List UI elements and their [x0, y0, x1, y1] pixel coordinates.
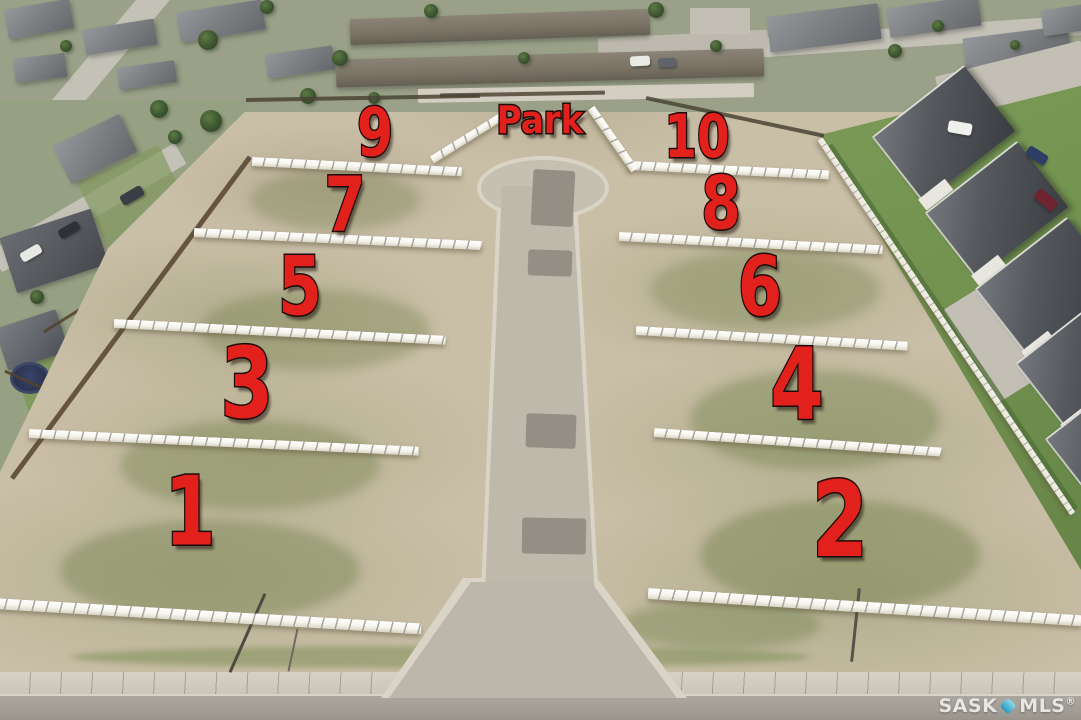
sask-mls-watermark: SASK MLS® [939, 695, 1077, 717]
lot-marker-8: 8 [701, 168, 741, 241]
tree [260, 0, 274, 14]
asphalt-patch [528, 249, 573, 277]
asphalt-patch [522, 517, 587, 554]
lot-marker-2: 2 [812, 468, 868, 572]
aerial-photo-lot-map: 9 10 7 8 5 6 3 4 1 2 Park SASK MLS® [0, 0, 1081, 720]
house-roof [4, 0, 74, 40]
car [658, 58, 676, 68]
tree [200, 110, 222, 132]
registered-mark: ® [1066, 697, 1077, 708]
house-roof [0, 209, 109, 294]
house-roof [176, 0, 266, 43]
lot-marker-3: 3 [220, 335, 273, 433]
asphalt-patch [531, 169, 576, 227]
tree [86, 306, 102, 322]
lot-marker-1: 1 [164, 466, 216, 561]
driveway [690, 8, 750, 34]
tree [648, 2, 664, 18]
tree [888, 44, 902, 58]
tree [30, 290, 44, 304]
tree [168, 130, 182, 144]
house-roof [1040, 2, 1081, 36]
house-roof [82, 19, 157, 56]
tree [150, 100, 168, 118]
tree [424, 4, 438, 18]
house-roof [13, 53, 68, 83]
townhouse-roof [336, 48, 765, 87]
lot-marker-10: 10 [664, 107, 729, 167]
lot-marker-9: 9 [357, 100, 393, 167]
watermark-brand-primary: SASK [939, 695, 998, 717]
tree [60, 40, 72, 52]
tree [518, 52, 530, 64]
backyard-fence [4, 370, 106, 417]
house-roof [117, 60, 177, 90]
asphalt-patch [525, 413, 576, 449]
tree [710, 40, 722, 52]
lot-marker-7: 7 [324, 167, 365, 243]
house-roof [265, 45, 336, 78]
tree [1010, 40, 1020, 50]
park-fence-right [588, 106, 638, 173]
tree [228, 140, 244, 156]
tree [932, 20, 944, 32]
diamond-icon [1000, 698, 1017, 715]
lot-marker-5: 5 [278, 248, 322, 329]
watermark-brand-secondary: MLS® [1019, 695, 1076, 717]
tree [198, 30, 218, 50]
park-label: Park [497, 101, 584, 139]
lot-marker-4: 4 [770, 336, 824, 435]
lot-marker-6: 6 [738, 247, 783, 329]
car [630, 55, 650, 66]
tree [332, 50, 348, 66]
